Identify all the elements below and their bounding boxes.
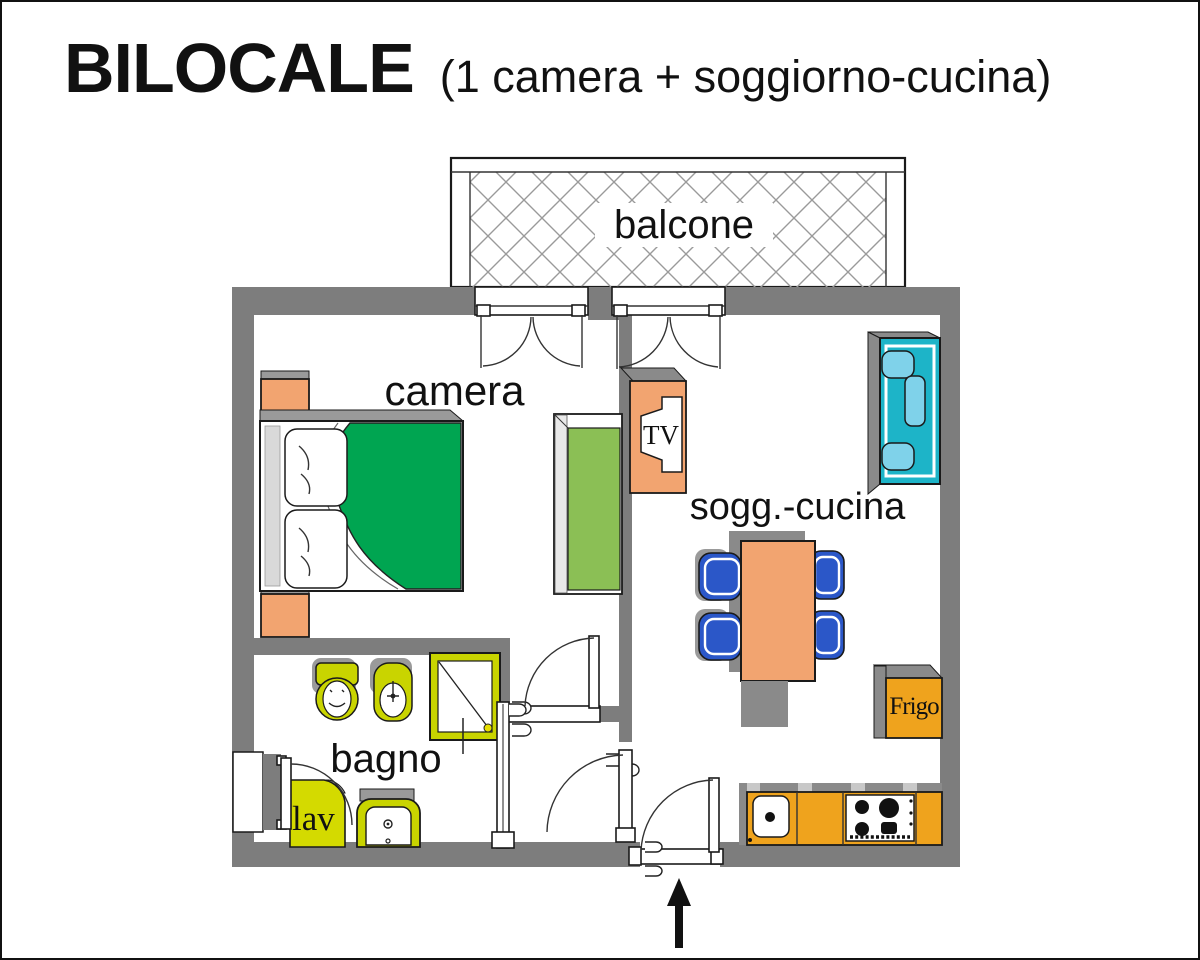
sofa — [868, 332, 940, 494]
bed-pillow-bottom — [285, 510, 347, 588]
bidet — [370, 658, 412, 721]
cooktop — [846, 795, 914, 841]
bedroom-door — [508, 636, 600, 736]
wall-hallway-top — [598, 706, 632, 722]
chair-left-top — [699, 553, 741, 600]
sofa-back-cushion — [905, 376, 925, 426]
title-main: BILOCALE — [64, 28, 414, 108]
floor-plan: BILOCALE (1 camera + soggiorno-cucina) b… — [0, 0, 1200, 960]
door-hinge-icon — [509, 704, 526, 716]
wardrobe — [554, 414, 622, 594]
table-shadow-bottom — [741, 681, 788, 727]
wall-right — [940, 287, 960, 867]
bathroom-sink — [357, 789, 420, 847]
room-label-balcony: balcone — [595, 203, 773, 247]
plan-title: BILOCALE (1 camera + soggiorno-cucina) — [64, 28, 1051, 108]
sofa-armrest-bottom — [882, 443, 914, 470]
dining-set — [695, 531, 844, 727]
living-hallway-door — [547, 750, 639, 842]
toilet — [312, 658, 358, 720]
bed-pillow-top — [285, 429, 347, 506]
floor-plan-drawing — [2, 2, 1200, 960]
entrance-arrow — [667, 878, 691, 948]
fridge-label: Frigo — [884, 694, 944, 720]
title-subtitle: (1 camera + soggiorno-cucina) — [440, 51, 1052, 103]
balcony-door-bedroom — [475, 287, 588, 368]
bed-headboard — [265, 426, 280, 586]
room-label-bedroom: camera — [362, 369, 547, 413]
tv-label: TV — [638, 421, 684, 449]
double-bed — [260, 410, 463, 591]
kitchen-counter — [739, 783, 942, 845]
room-label-living-kitchen: sogg.-cucina — [665, 488, 930, 528]
chair-left-bottom — [699, 613, 741, 660]
dining-table — [741, 541, 815, 681]
washer-label: lav — [292, 801, 344, 838]
room-label-bathroom: bagno — [320, 738, 452, 780]
entrance-door — [629, 778, 723, 876]
nightstand-bottom — [261, 586, 309, 637]
sofa-armrest-top — [882, 351, 914, 378]
